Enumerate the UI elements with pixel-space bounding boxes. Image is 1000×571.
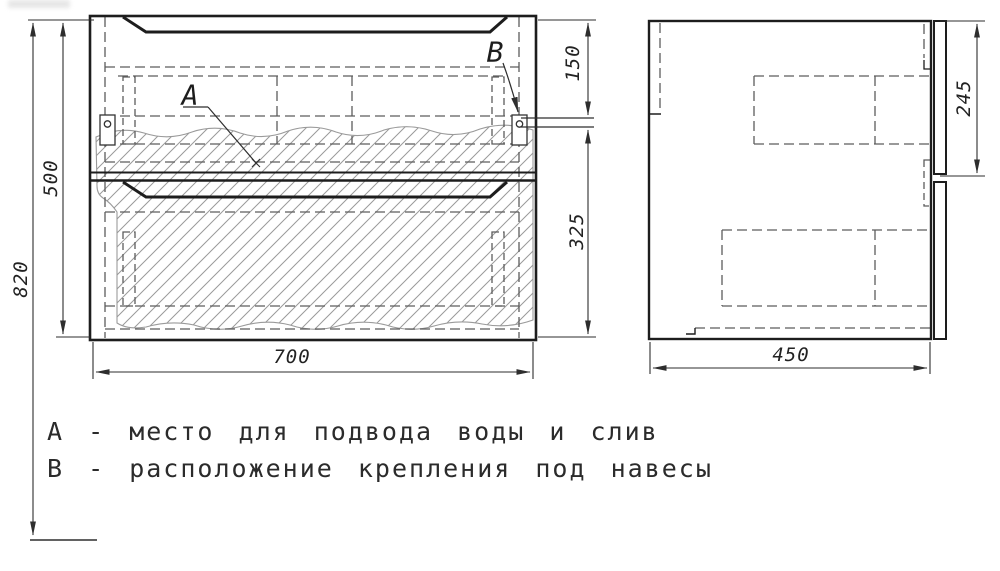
dim-820-label: 820 bbox=[10, 260, 32, 297]
technical-drawing-page: 820 500 700 150 325 245 450 А В А - мест… bbox=[0, 0, 1000, 571]
drawer-front-panel-lower bbox=[934, 182, 946, 339]
side-hidden-lines bbox=[660, 23, 931, 328]
hatch-area-plumbing-zone bbox=[96, 125, 533, 329]
dim-700-label: 700 bbox=[273, 346, 310, 368]
callout-b-label: В bbox=[487, 36, 504, 69]
dim-325-label: 325 bbox=[566, 212, 588, 249]
front-view bbox=[90, 16, 594, 340]
side-view bbox=[649, 21, 946, 339]
handle-recess-upper bbox=[123, 17, 507, 32]
drawer-front-panel-upper bbox=[934, 21, 946, 174]
dim-500-label: 500 bbox=[40, 159, 62, 196]
dim-150-label: 150 bbox=[562, 44, 584, 81]
legend-line-b: В - расположение крепления под навесы bbox=[47, 454, 713, 483]
legend-line-a: А - место для подвода воды и слив bbox=[47, 417, 659, 446]
mounting-bracket-right bbox=[512, 115, 527, 145]
side-outline bbox=[649, 21, 946, 339]
drawing-geometry bbox=[0, 0, 1000, 571]
dim-450-label: 450 bbox=[772, 344, 809, 366]
dim-245-label: 245 bbox=[953, 79, 975, 116]
mounting-bracket-left bbox=[100, 115, 115, 145]
callout-a-label: А bbox=[182, 79, 199, 112]
